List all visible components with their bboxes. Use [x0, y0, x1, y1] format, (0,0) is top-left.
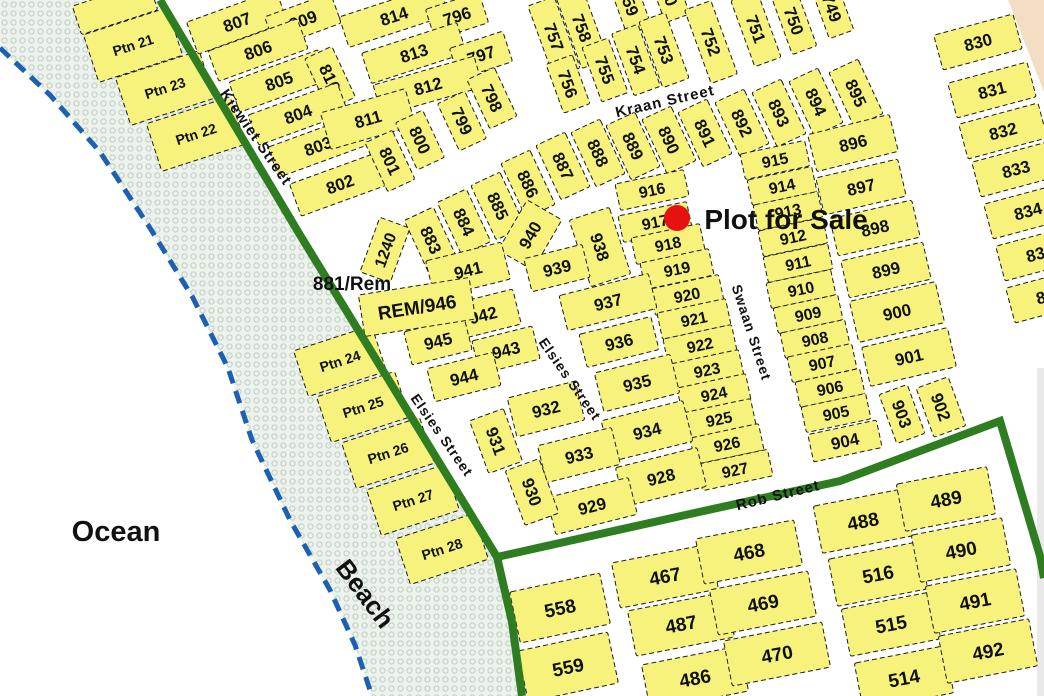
plot-470: 470	[724, 622, 831, 686]
plot-881-rem-label: 881/Rem	[313, 274, 391, 295]
plot-469: 469	[710, 571, 817, 635]
plot-935: 935	[594, 354, 679, 412]
plot-751: 751	[731, 0, 781, 67]
plot-1240: 1240	[360, 217, 410, 282]
plot-558: 558	[510, 573, 611, 643]
plot-830: 830	[934, 14, 1023, 70]
plot-488: 488	[813, 489, 912, 554]
plot-559: 559	[518, 632, 619, 696]
sale-marker-dot	[664, 205, 690, 231]
plot-752: 752	[685, 1, 738, 84]
plot-933: 933	[538, 427, 621, 482]
plot-749: 749	[810, 0, 854, 39]
plot-944: 944	[427, 352, 501, 401]
map-canvas: Ptn 21Ptn 23Ptn 22Ptn 24Ptn 25Ptn 26Ptn …	[0, 0, 1044, 696]
cadastral-map: Ptn 21Ptn 23Ptn 22Ptn 24Ptn 25Ptn 26Ptn …	[0, 0, 1044, 696]
ocean-label: Ocean	[72, 516, 161, 548]
street-label-rob-street-5: Rob Street	[734, 477, 821, 514]
sale-marker-label: Plot for Sale	[704, 204, 867, 235]
plot-468: 468	[696, 520, 803, 584]
plot-750: 750	[771, 0, 817, 55]
plot-514: 514	[854, 646, 953, 696]
map-edge-strip	[1037, 368, 1044, 696]
